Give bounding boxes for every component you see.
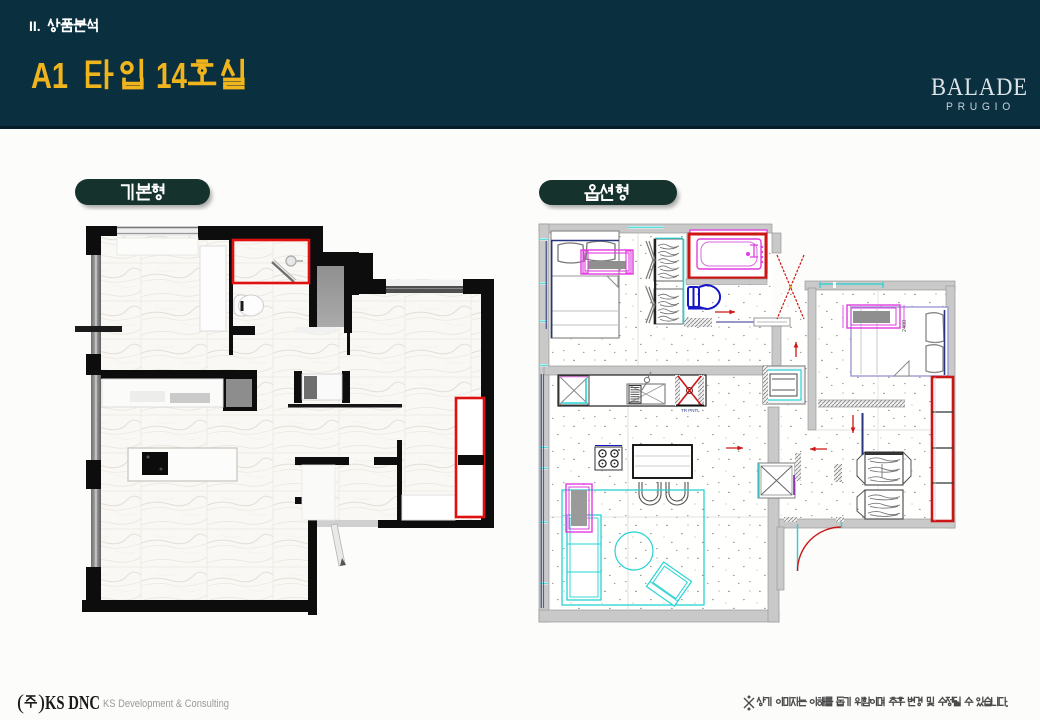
- svg-text:II.: II.: [29, 18, 41, 34]
- svg-text:(: (: [17, 690, 24, 714]
- svg-text:KS DNC: KS DNC: [45, 692, 100, 714]
- svg-text:): ): [38, 690, 45, 714]
- svg-text:BALADE: BALADE: [931, 74, 1028, 101]
- svg-text:TR PNTL: TR PNTL: [681, 408, 700, 413]
- svg-text:PRUGIO: PRUGIO: [946, 101, 1015, 113]
- svg-text:A1: A1: [31, 55, 68, 96]
- svg-text:2400: 2400: [902, 320, 908, 332]
- svg-text:14: 14: [156, 55, 187, 96]
- svg-text:KS Development & Consulting: KS Development & Consulting: [103, 698, 229, 710]
